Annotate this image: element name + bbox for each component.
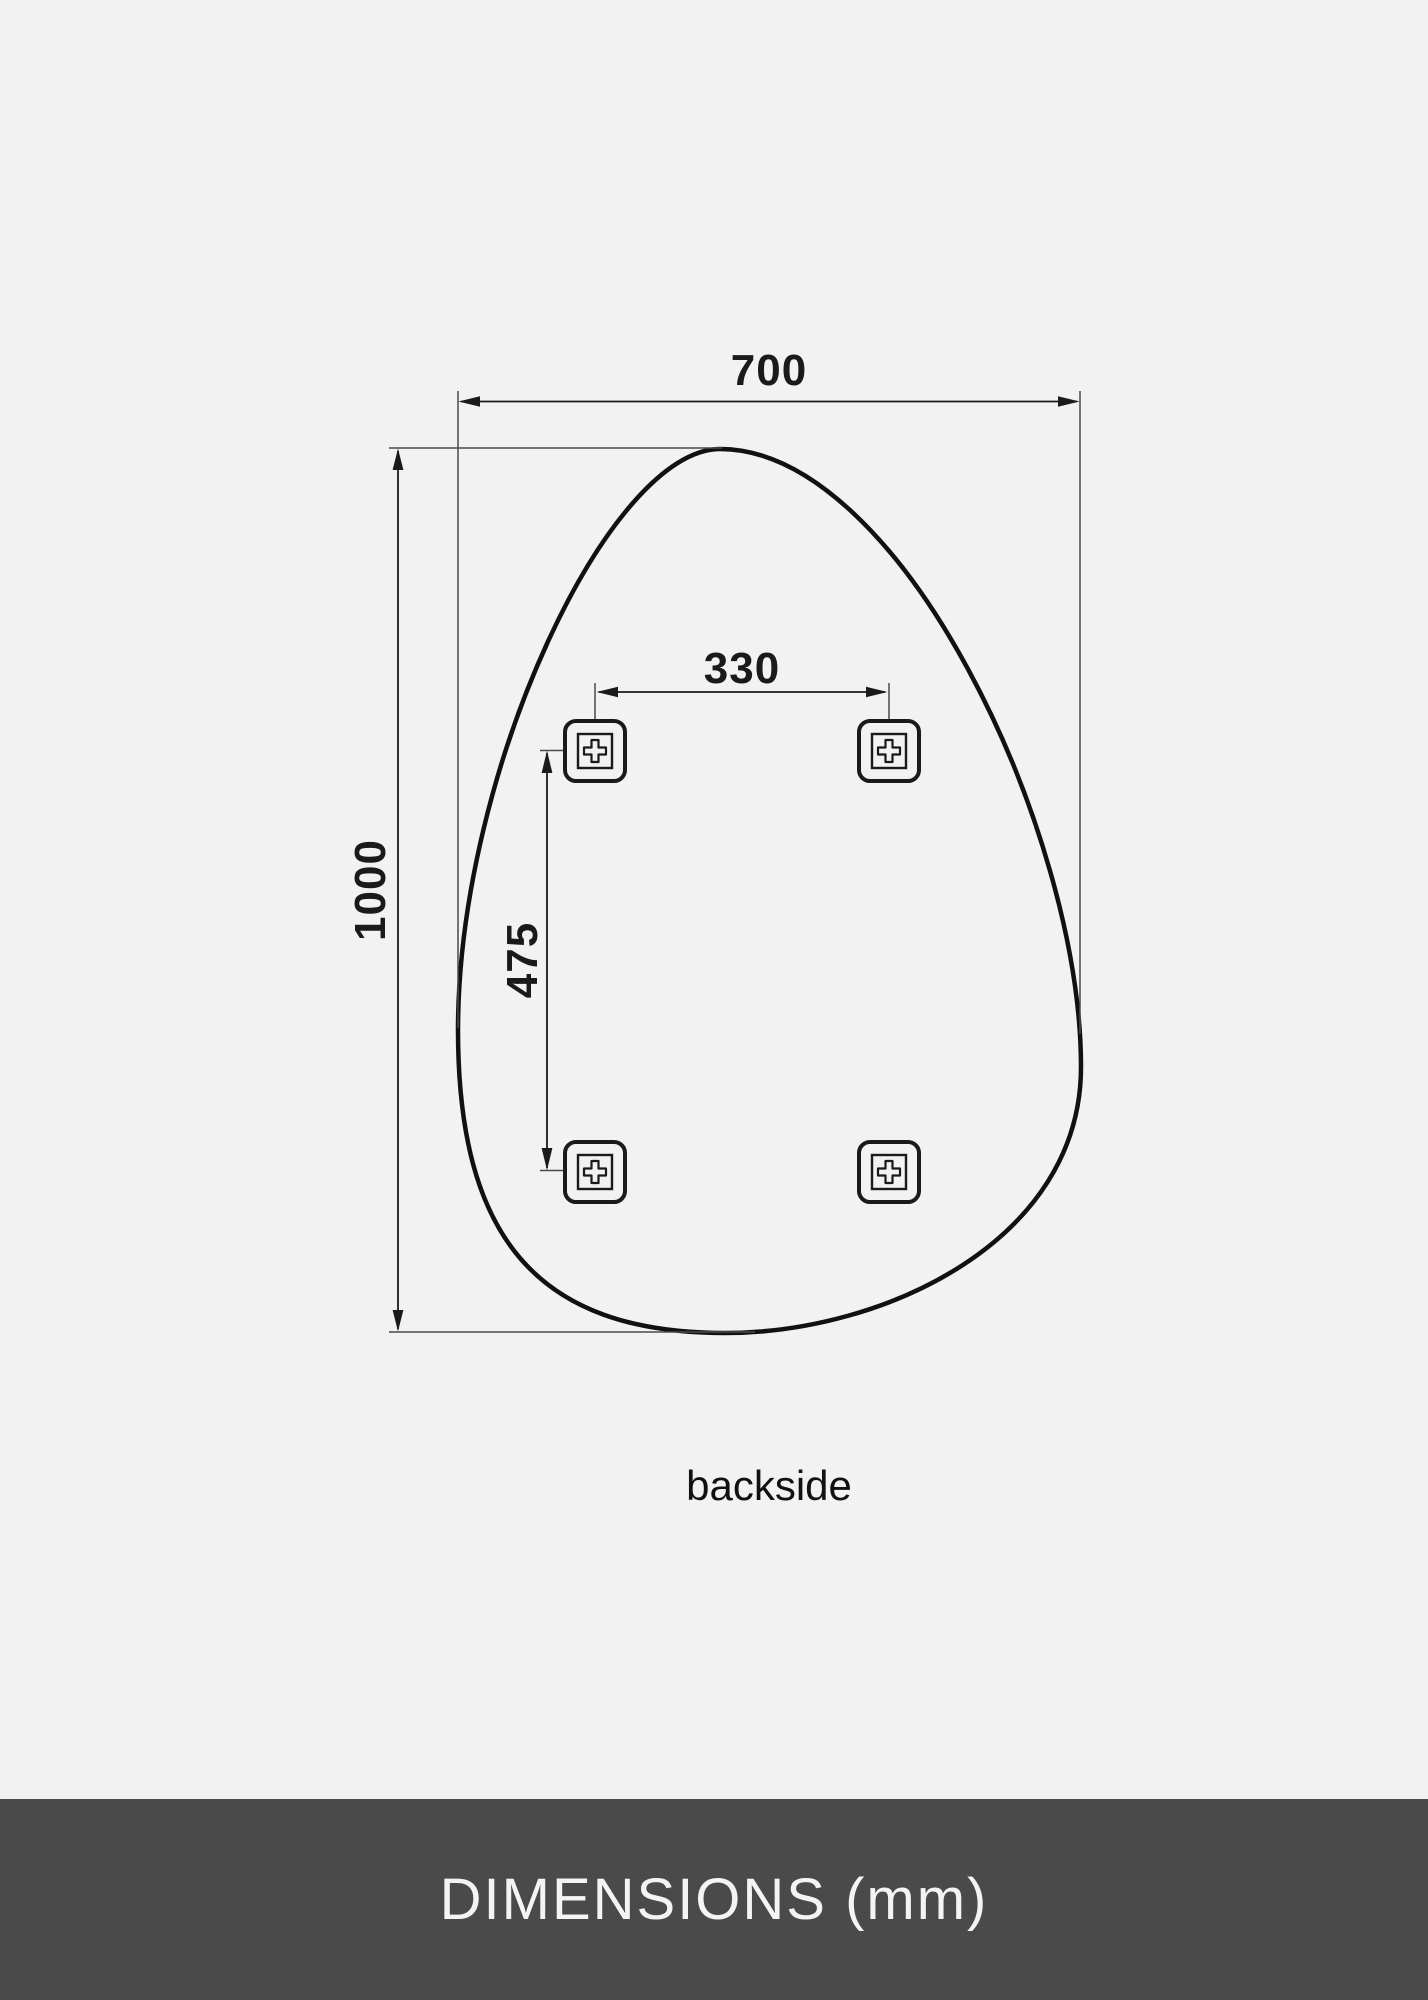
- mount-bracket-top-left: [565, 721, 625, 781]
- arrowhead-right: [1058, 396, 1080, 407]
- bracket-spacing-horizontal-value: 330: [704, 644, 780, 693]
- bracket-spacing-vertical-dimension: 475: [498, 751, 566, 1171]
- mount-bracket-top-right: [859, 721, 919, 781]
- arrowhead-bottom: [542, 1148, 553, 1170]
- width-value: 700: [731, 346, 807, 395]
- mount-bracket-bottom-right: [859, 1142, 919, 1202]
- arrowhead-left: [459, 396, 481, 407]
- height-dimension: 1000: [346, 448, 755, 1332]
- dimension-sheet: 700 1000 330 475: [0, 0, 1428, 2000]
- arrowhead-left: [597, 687, 619, 698]
- arrowhead-bottom: [393, 1310, 404, 1332]
- arrowhead-top: [542, 751, 553, 773]
- mirror-dimension-diagram: 700 1000 330 475: [0, 0, 1428, 1799]
- height-value: 1000: [346, 839, 395, 941]
- footer-title: DIMENSIONS (mm): [440, 1866, 989, 1933]
- arrowhead-top: [393, 449, 404, 471]
- view-label: backside: [686, 1462, 852, 1509]
- bracket-spacing-vertical-value: 475: [498, 922, 547, 998]
- mirror-outline: [458, 449, 1081, 1333]
- mount-bracket-bottom-left: [565, 1142, 625, 1202]
- arrowhead-right: [866, 687, 888, 698]
- bracket-spacing-horizontal-dimension: 330: [595, 644, 889, 721]
- footer-bar: DIMENSIONS (mm): [0, 1799, 1428, 2000]
